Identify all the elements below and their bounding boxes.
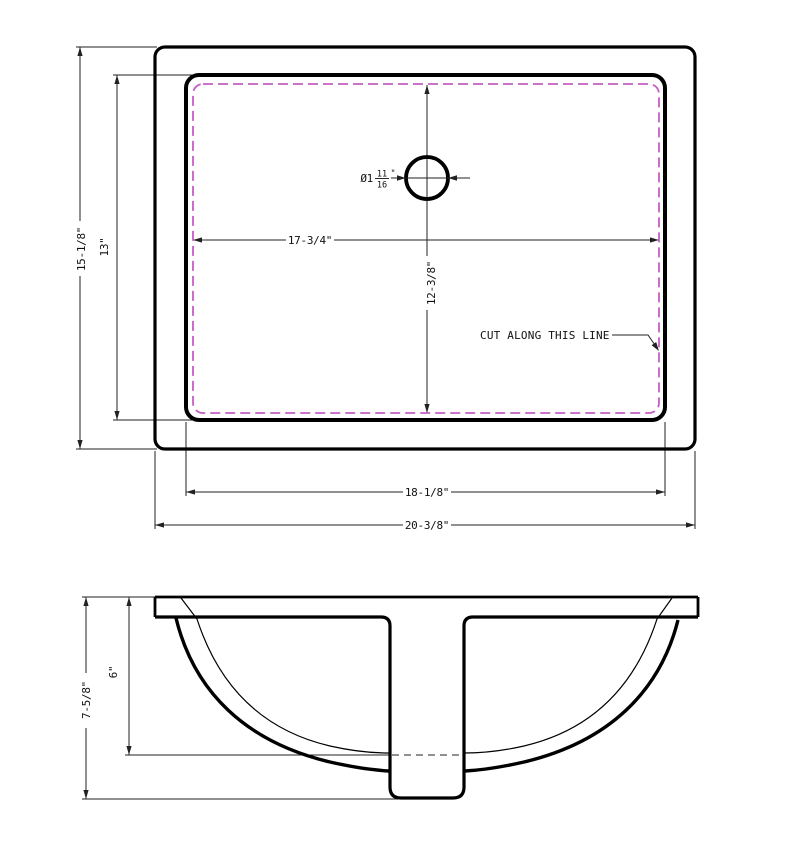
- drawing-svg: Ø1 11 16 " 15-1/8" 13" 17-3/4" 12-3/8" 1…: [0, 0, 798, 864]
- drain-dim-unit: ": [391, 169, 396, 179]
- drain-dim-denominator: 16: [377, 181, 387, 191]
- dim-inner-height: 13": [98, 238, 111, 257]
- dim-bowl-depth: 6": [107, 666, 120, 679]
- dim-overall-height: 15-1/8": [75, 227, 88, 271]
- drain-dim-prefix: Ø1: [360, 172, 373, 185]
- cut-note-arrow: [652, 342, 659, 351]
- bowl-outer-left: [176, 618, 389, 771]
- sink-technical-drawing: Ø1 11 16 " 15-1/8" 13" 17-3/4" 12-3/8" 1…: [0, 0, 798, 864]
- outer-rim-outline: [155, 47, 695, 449]
- rim-underside-and-drain-tube: [155, 617, 698, 798]
- cut-note-leader: [612, 335, 657, 348]
- bowl-outer-right: [465, 620, 678, 771]
- top-view-extension-lines: [76, 47, 695, 529]
- front-view-extension-lines: [82, 597, 462, 799]
- drain-dimension-label: Ø1 11 16 ": [360, 169, 395, 191]
- cut-note-label: CUT ALONG THIS LINE: [480, 329, 610, 342]
- dim-cut-width: 17-3/4": [288, 234, 332, 247]
- dim-cut-height: 12-3/8": [425, 261, 438, 305]
- front-rim: [155, 597, 698, 617]
- front-view: 7-5/8" 6": [78, 597, 698, 799]
- cutout-line: [193, 84, 659, 413]
- inner-bowl-outline: [186, 75, 665, 420]
- top-view-dimension-lines: [80, 47, 695, 525]
- dim-inner-width: 18-1/8": [405, 486, 449, 499]
- bowl-inner-right: [465, 598, 672, 753]
- top-view: Ø1 11 16 " 15-1/8" 13" 17-3/4" 12-3/8" 1…: [73, 47, 695, 532]
- bowl-inner-left: [181, 598, 389, 753]
- drain-dim-numerator: 11: [377, 170, 387, 180]
- dim-overall-depth: 7-5/8": [80, 681, 93, 719]
- dim-overall-width: 20-3/8": [405, 519, 449, 532]
